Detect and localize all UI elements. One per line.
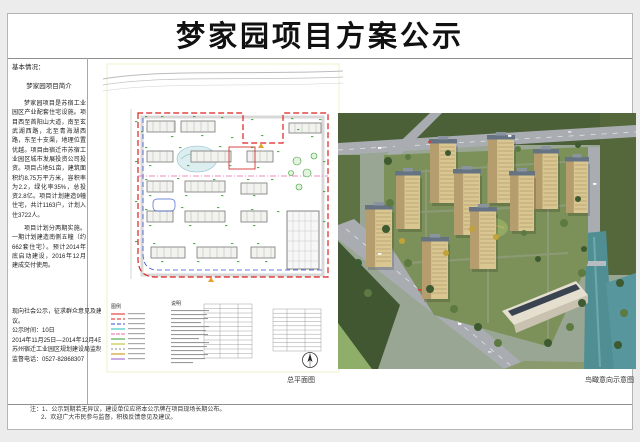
title-divider: [8, 58, 632, 59]
aerial-rendering: [338, 113, 636, 369]
intro-heading: 梦家园项目简介: [12, 82, 86, 92]
public-notice-poster: { "page": { "title": "梦家园项目方案公示" }, "lef…: [0, 0, 640, 442]
intro-paragraph-1: 梦家园项目是苏宿工业园区产业配套住宅设施。项目西至首阳山大道，南至玄武湖西路，北…: [12, 100, 86, 221]
notice-phone: 监督电话：0527-82868307: [12, 356, 106, 366]
notice-line: 现向社会公示，征求群众意见及建议。: [12, 308, 106, 327]
garage-building: [287, 211, 319, 269]
footnote-divider: [8, 404, 632, 405]
intro-paragraph-2: 项目计划分两期实施。一期计划建造南侧五幢（约662套住宅）。预计2014年底启动…: [12, 225, 86, 271]
site-plan-caption: 总平面图: [258, 375, 344, 385]
rendering-caption: 鸟瞰意向示意图: [556, 375, 634, 385]
svg-text:图例: 图例: [111, 303, 121, 310]
publicity-block: 现向社会公示，征求群众意见及建议。 公示时间：10日 2014年11月25日—2…: [12, 308, 106, 366]
page-title: 梦家园项目方案公示: [8, 14, 632, 57]
basic-info-panel: 基本情况： 梦家园项目简介 梦家园项目是苏宿工业园区产业配套住宅设施。项目西至首…: [12, 63, 86, 275]
footnote-2: 2、欢迎广大市民参与监督，积极反馈意见及建议。: [30, 415, 225, 423]
compass-icon: [303, 353, 318, 368]
notice-authority: 苏州宿迁工业园区规划建设局监制: [12, 346, 106, 356]
notice-page: 梦家园项目方案公示 基本情况： 梦家园项目简介 梦家园项目是苏宿工业园区产业配套…: [7, 13, 633, 430]
footnote-1: 注：1、公示到期若无异议，建设单位应将本公示牌在项目现场长期公布。: [30, 407, 225, 415]
notice-dates: 2014年11月25日—2014年12月4日: [12, 337, 106, 347]
section-label: 基本情况：: [12, 63, 86, 73]
footnotes: 注：1、公示到期若无异议，建设单位应将本公示牌在项目现场长期公布。 2、欢迎广大…: [30, 407, 225, 423]
notice-duration: 公示时间：10日: [12, 327, 106, 337]
west-green-strip: [338, 155, 360, 227]
svg-text:说明: 说明: [171, 300, 181, 307]
site-plan-drawing: 图例 说明: [101, 61, 345, 376]
